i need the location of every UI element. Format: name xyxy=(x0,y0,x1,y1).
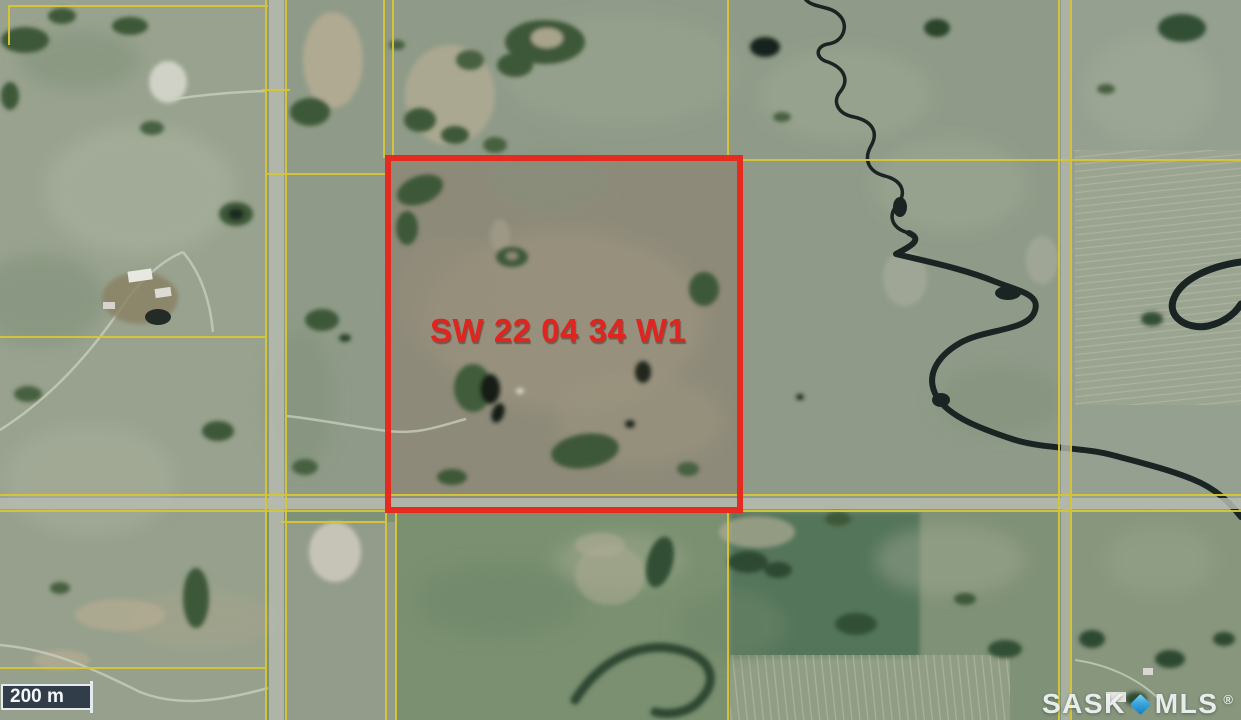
scale-bar: 200 m xyxy=(1,684,93,710)
watermark-sask: SASK xyxy=(1042,688,1126,720)
scale-bar-tick xyxy=(90,681,93,713)
watermark-mls: MLS xyxy=(1155,688,1219,720)
satellite-map[interactable]: SW 22 04 34 W1 200 m SASK MLS ® xyxy=(0,0,1241,720)
mls-diamond-icon xyxy=(1130,693,1151,714)
scale-label: 200 m xyxy=(10,686,64,708)
parcel-label: SW 22 04 34 W1 xyxy=(430,312,686,350)
registered-symbol: ® xyxy=(1223,692,1233,707)
sask-mls-logo: SASK MLS ® xyxy=(1042,688,1233,720)
